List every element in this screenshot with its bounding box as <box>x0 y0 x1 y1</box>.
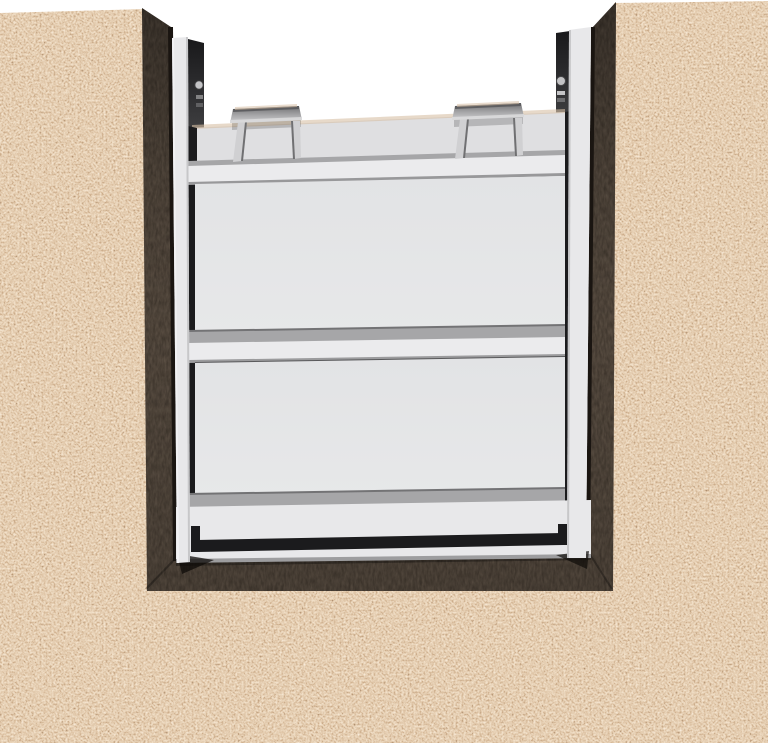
sill-notch-right <box>558 524 567 545</box>
wall-bolt-right <box>557 77 566 86</box>
wall-bolt-right-mark-2 <box>557 98 565 102</box>
wall-bolt-left-mark-1 <box>196 95 203 99</box>
guide-channel-panel-right <box>556 31 570 118</box>
wall-bolt-left <box>195 81 203 89</box>
stop-log-panel-1 <box>195 176 565 337</box>
product-render-penstock-gate <box>0 0 768 743</box>
sill-notch-left <box>191 526 200 552</box>
bottom-sill <box>176 500 591 563</box>
stop-log-panel-2 <box>195 357 565 500</box>
wall-bolt-left-mark-2 <box>196 103 203 107</box>
wall-bolt-right-mark-1 <box>557 91 565 95</box>
